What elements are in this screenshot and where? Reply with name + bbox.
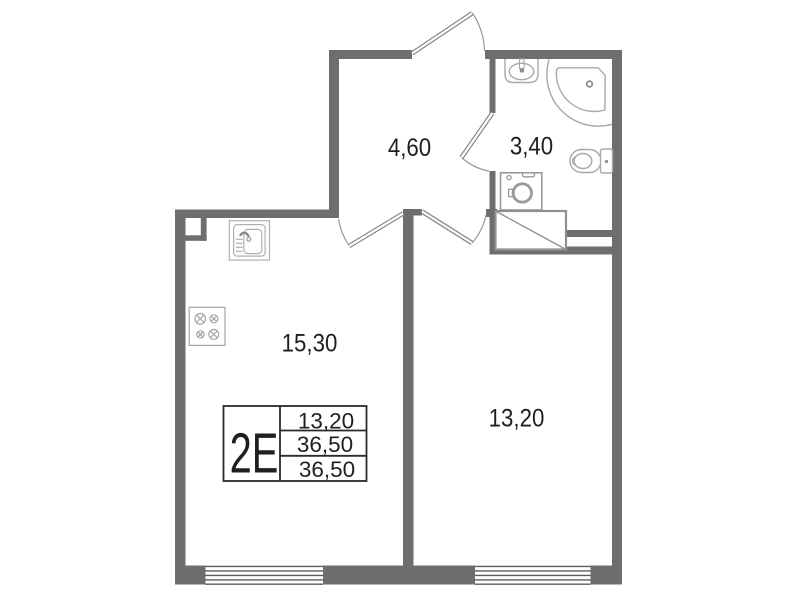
svg-text:4,60: 4,60 bbox=[388, 134, 431, 163]
svg-text:15,30: 15,30 bbox=[282, 329, 338, 358]
svg-text:2Е: 2Е bbox=[230, 422, 279, 486]
svg-text:3,40: 3,40 bbox=[510, 132, 553, 161]
svg-text:36,50: 36,50 bbox=[297, 432, 353, 457]
svg-text:13,20: 13,20 bbox=[298, 409, 354, 434]
svg-text:36,50: 36,50 bbox=[299, 457, 355, 482]
svg-text:13,20: 13,20 bbox=[489, 404, 545, 433]
